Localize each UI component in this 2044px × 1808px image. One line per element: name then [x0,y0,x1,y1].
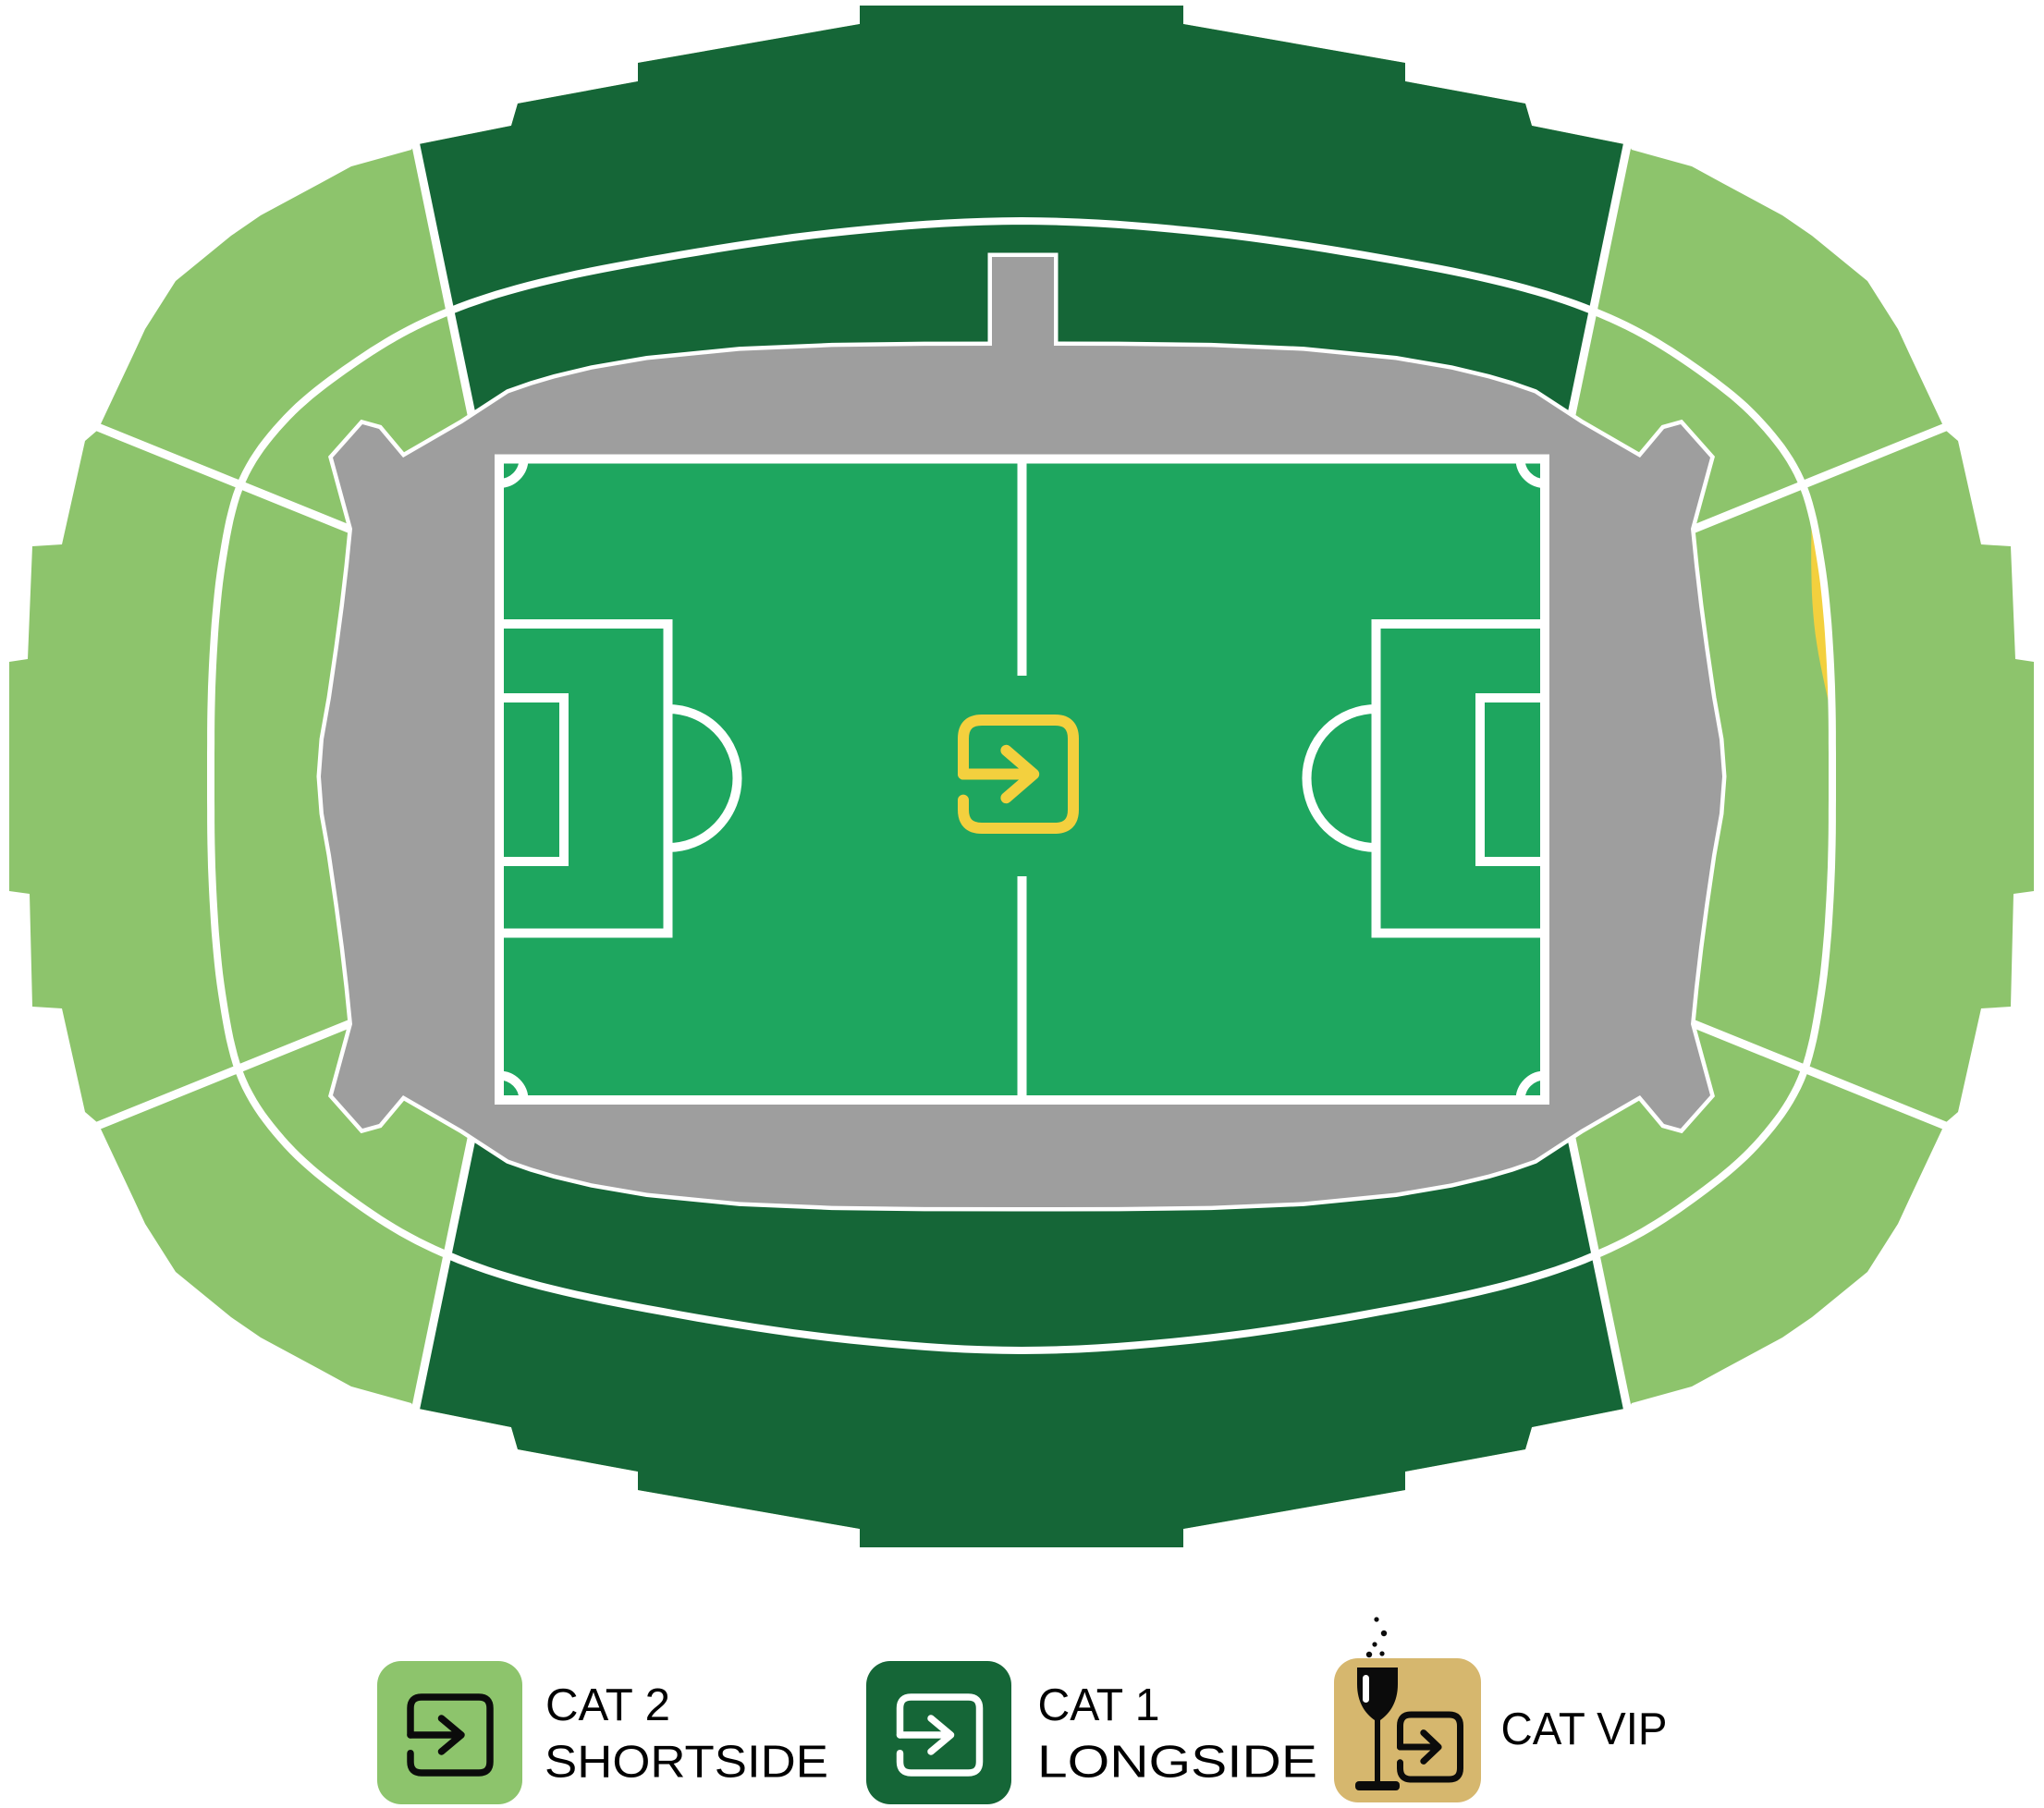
svg-text:CAT 2: CAT 2 [545,1680,670,1730]
svg-text:SHORTSIDE: SHORTSIDE [545,1738,828,1788]
svg-text:CAT 1: CAT 1 [1038,1680,1160,1730]
svg-text:LONGSIDE: LONGSIDE [1037,1738,1317,1788]
svg-text:CAT VIP: CAT VIP [1501,1704,1668,1754]
